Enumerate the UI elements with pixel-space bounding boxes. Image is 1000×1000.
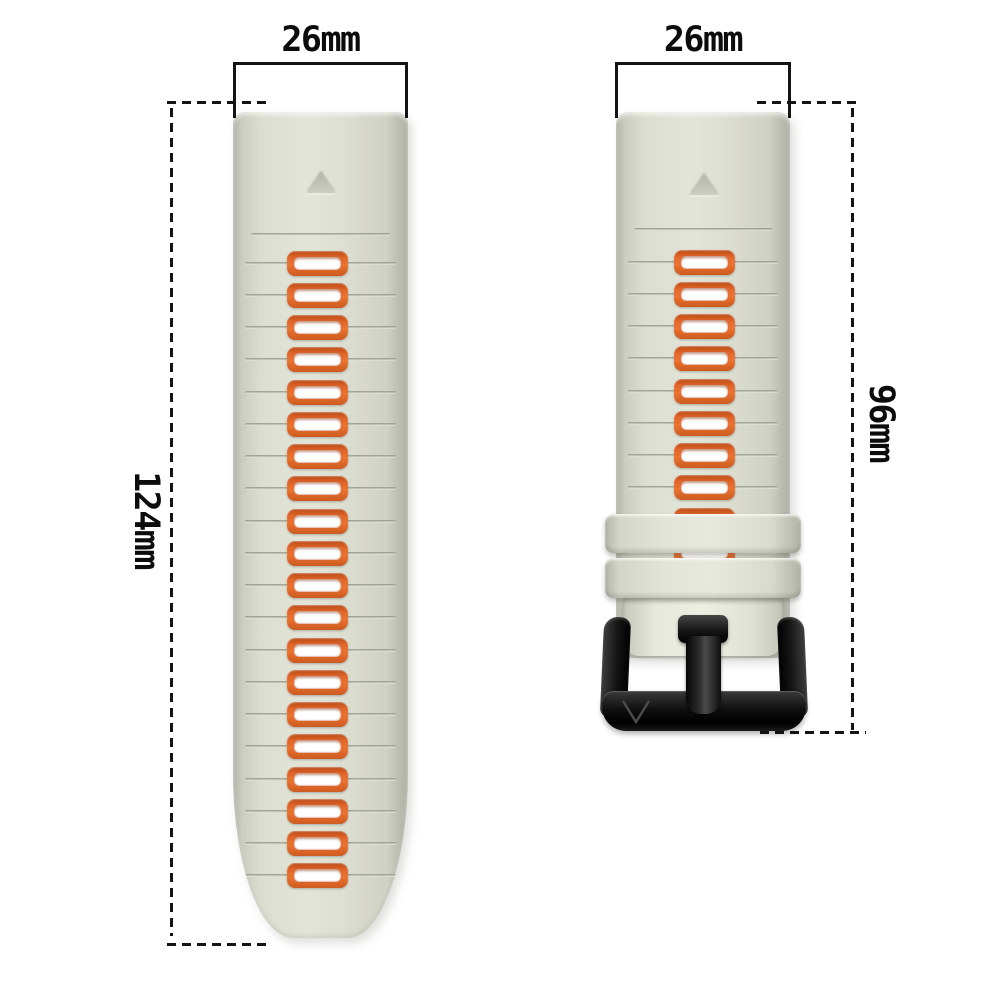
dimension-tick <box>788 62 791 118</box>
band-slot-hole <box>294 676 341 689</box>
dimension-dashed-line <box>167 101 268 104</box>
product-dimension-diagram: 26mm 26mm 124mm 96mm <box>0 0 1000 1000</box>
band-slot <box>287 799 348 824</box>
triangle-marker-icon <box>690 174 718 195</box>
band-slot-hole <box>294 482 341 495</box>
band-slot-hole <box>681 352 728 365</box>
dimension-tick <box>405 62 408 118</box>
band-slot-hole <box>294 515 341 528</box>
band-slot <box>287 380 348 405</box>
band-slot <box>287 347 348 372</box>
band-slot-hole <box>681 256 728 269</box>
band-slot-hole <box>294 321 341 334</box>
band-slot <box>674 250 735 275</box>
band-slot-hole <box>294 773 341 786</box>
band-slot-hole <box>294 869 341 882</box>
strap-keeper-loop-2 <box>605 558 801 598</box>
band-slot-hole <box>294 418 341 431</box>
strap-keeper-loop-1 <box>605 514 801 553</box>
band-slot <box>674 346 735 371</box>
dimension-dashed-line <box>760 731 866 734</box>
band-slot-hole <box>294 644 341 657</box>
band-slot <box>287 767 348 792</box>
band-slot <box>674 282 735 307</box>
triangle-marker-icon <box>307 172 335 193</box>
band-slot-hole <box>294 740 341 753</box>
band-slot-hole <box>681 288 728 301</box>
band-slot <box>287 734 348 759</box>
width-label-left-band: 26mm <box>233 20 408 60</box>
band-slot <box>674 314 735 339</box>
dimension-line <box>616 62 790 65</box>
band-slot-hole <box>294 257 341 270</box>
band-slot <box>287 476 348 501</box>
band-slot <box>674 443 735 468</box>
band-slot <box>674 411 735 436</box>
band-slot <box>287 638 348 663</box>
band-slot-hole <box>294 837 341 850</box>
band-slot-hole <box>294 547 341 560</box>
dimension-tick <box>615 62 618 118</box>
band-slot-hole <box>294 708 341 721</box>
band-slot <box>287 702 348 727</box>
band-slot-hole <box>294 579 341 592</box>
dimension-tick <box>233 62 236 118</box>
band-slot-hole <box>681 320 728 333</box>
band-slot <box>287 412 348 437</box>
dimension-dashed-line <box>170 108 173 936</box>
band-slot <box>287 670 348 695</box>
band-slot <box>287 831 348 856</box>
band-slot <box>287 315 348 340</box>
dimension-line <box>234 62 406 65</box>
groove-line <box>634 228 772 231</box>
band-slot-hole <box>294 805 341 818</box>
band-slot-hole <box>681 481 728 494</box>
dimension-dashed-line <box>167 943 269 946</box>
band-slot <box>287 863 348 888</box>
watch-band-long <box>233 112 408 938</box>
length-label-right-band: 96mm <box>861 353 901 493</box>
band-slot-hole <box>294 450 341 463</box>
band-slot <box>674 475 735 500</box>
buckle-tang <box>686 636 721 714</box>
groove-line <box>251 233 390 236</box>
band-slot <box>287 605 348 630</box>
band-slot <box>287 444 348 469</box>
band-slot-hole <box>294 353 341 366</box>
dimension-dashed-line <box>851 108 854 730</box>
band-slot <box>287 509 348 534</box>
band-slot-hole <box>681 385 728 398</box>
band-slot-hole <box>294 289 341 302</box>
band-slot <box>287 283 348 308</box>
length-label-left-band: 124mm <box>126 440 166 600</box>
width-label-right-band: 26mm <box>616 20 790 60</box>
buckle-logo-v-icon <box>620 698 652 725</box>
band-slot-hole <box>294 611 341 624</box>
band-slot <box>674 379 735 404</box>
band-slot-hole <box>294 386 341 399</box>
band-slot <box>287 573 348 598</box>
band-slot-hole <box>681 449 728 462</box>
band-slot-hole <box>681 417 728 430</box>
band-slot <box>287 541 348 566</box>
band-slot <box>287 251 348 276</box>
dimension-dashed-line <box>757 101 860 104</box>
